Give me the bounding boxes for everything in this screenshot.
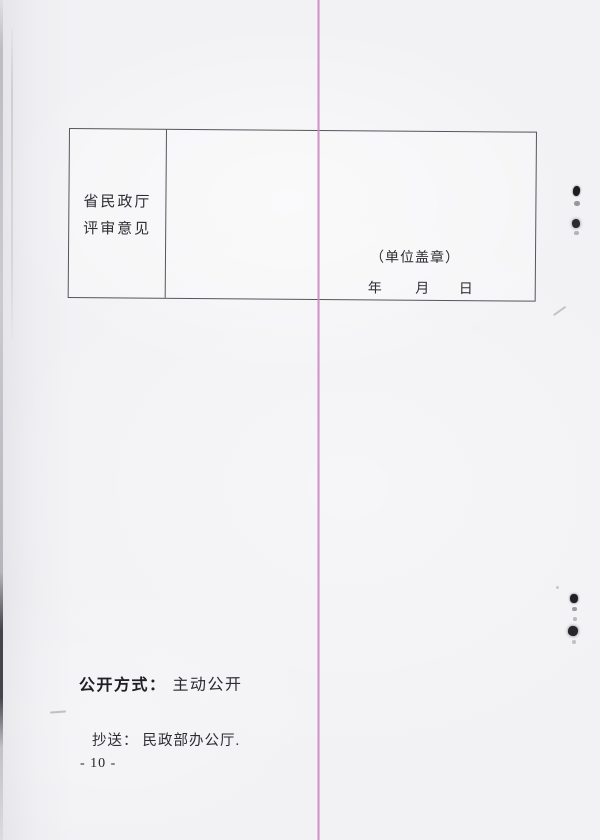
- scan-edge-shadow: [0, 0, 3, 840]
- scan-faint-line: [11, 28, 13, 338]
- scan-mark: [570, 594, 578, 603]
- scan-mark: [567, 625, 579, 637]
- scan-mark: [572, 186, 580, 197]
- scan-mark: [556, 586, 559, 589]
- date-year: 年: [368, 277, 382, 297]
- disclosure-label: 公开方式：: [79, 677, 167, 694]
- scan-mark: [553, 306, 566, 316]
- scan-mark: [50, 710, 66, 713]
- review-content-cell: （单位盖章） 年 月 日: [166, 130, 536, 301]
- review-label-line2: 评审意见: [69, 216, 165, 244]
- scan-mark: [572, 640, 576, 644]
- review-label-cell: 省民政厅 评审意见: [69, 129, 167, 298]
- date-month: 月: [415, 278, 429, 298]
- date-day: 日: [459, 278, 473, 298]
- cc-line: 抄送：民政部办公厅.: [92, 729, 240, 750]
- disclosure-value: 主动公开: [172, 677, 242, 694]
- fold-line: [317, 0, 320, 840]
- review-table: 省民政厅 评审意见 （单位盖章） 年 月 日: [68, 128, 537, 302]
- date-line: 年 月 日: [368, 277, 473, 298]
- cc-label: 抄送：: [92, 733, 139, 749]
- scan-mark: [572, 219, 581, 229]
- page-number: - 10 -: [80, 756, 116, 772]
- scan-mark: [572, 607, 577, 611]
- disclosure-line: 公开方式：主动公开: [79, 671, 243, 696]
- document-page: 省民政厅 评审意见 （单位盖章） 年 月 日 公开方式：主动公开 抄送：民政部办…: [0, 0, 600, 840]
- scan-mark: [574, 231, 579, 235]
- cc-value: 民政部办公厅.: [143, 733, 241, 749]
- scan-mark: [574, 201, 580, 206]
- review-label: 省民政厅 评审意见: [69, 189, 165, 244]
- review-label-line1: 省民政厅: [69, 189, 165, 217]
- seal-note: （单位盖章）: [370, 246, 460, 267]
- scan-mark: [573, 617, 577, 621]
